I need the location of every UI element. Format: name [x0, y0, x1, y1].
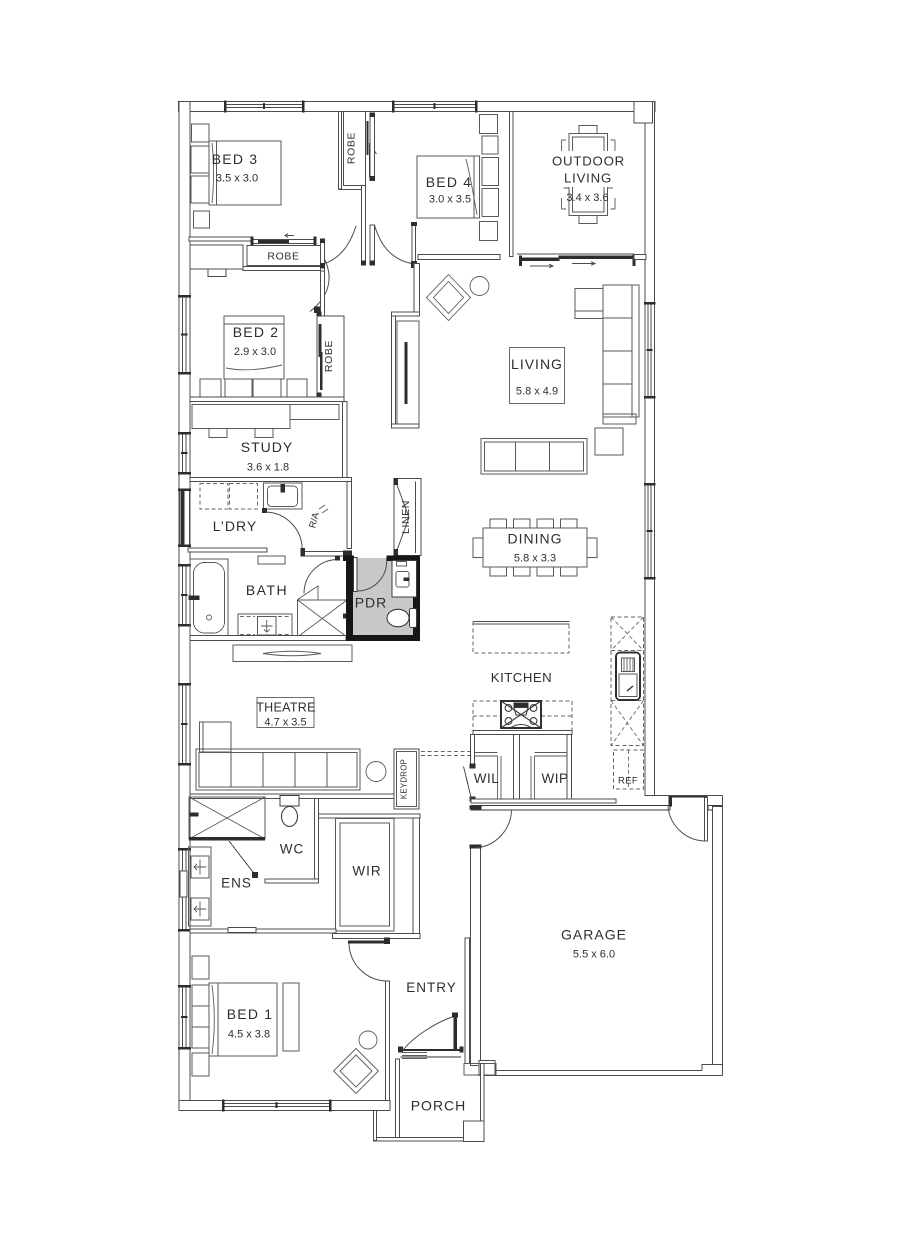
svg-text:ENTRY: ENTRY [406, 980, 457, 995]
svg-text:THEATRE: THEATRE [256, 701, 316, 715]
svg-text:KITCHEN: KITCHEN [491, 670, 552, 685]
svg-text:BED 3: BED 3 [212, 151, 258, 167]
svg-text:WIR: WIR [352, 864, 381, 879]
svg-text:ENS: ENS [221, 876, 252, 891]
svg-text:LIVING: LIVING [564, 171, 612, 186]
svg-text:4.7 x 3.5: 4.7 x 3.5 [264, 717, 306, 729]
svg-text:ROBE: ROBE [323, 340, 335, 372]
svg-text:DINING: DINING [508, 531, 563, 547]
svg-text:3.5 x 3.0: 3.5 x 3.0 [216, 173, 258, 185]
svg-text:PORCH: PORCH [411, 1098, 467, 1114]
svg-text:WIL: WIL [474, 771, 500, 786]
svg-text:ROBE: ROBE [346, 132, 358, 164]
svg-text:LIVING: LIVING [511, 356, 563, 372]
svg-text:LINEN: LINEN [400, 500, 412, 534]
svg-text:4.5 x 3.8: 4.5 x 3.8 [228, 1029, 270, 1041]
svg-text:2.9 x 3.0: 2.9 x 3.0 [234, 346, 276, 358]
svg-text:BATH: BATH [246, 582, 288, 598]
svg-text:L’DRY: L’DRY [213, 518, 257, 534]
svg-text:KEYDROP: KEYDROP [400, 759, 409, 799]
svg-text:WIP: WIP [542, 771, 569, 786]
svg-text:BED 2: BED 2 [233, 324, 279, 340]
svg-text:3.6 x 1.8: 3.6 x 1.8 [247, 462, 289, 474]
svg-text:3.4 x 3.6: 3.4 x 3.6 [566, 192, 608, 204]
svg-text:REF: REF [618, 776, 638, 787]
svg-text:STUDY: STUDY [241, 439, 293, 455]
svg-text:OUTDOOR: OUTDOOR [552, 154, 625, 169]
svg-text:PDR: PDR [355, 595, 388, 611]
svg-text:5.8 x 4.9: 5.8 x 4.9 [516, 386, 558, 398]
svg-text:BED 1: BED 1 [227, 1006, 273, 1022]
svg-text:5.8 x 3.3: 5.8 x 3.3 [514, 553, 556, 565]
svg-text:WC: WC [280, 842, 305, 857]
svg-text:5.5 x 6.0: 5.5 x 6.0 [573, 949, 615, 961]
svg-text:BED 4: BED 4 [426, 174, 472, 190]
svg-text:3.0 x 3.5: 3.0 x 3.5 [429, 194, 471, 206]
svg-text:ROBE: ROBE [267, 251, 299, 263]
svg-text:GARAGE: GARAGE [561, 927, 627, 943]
